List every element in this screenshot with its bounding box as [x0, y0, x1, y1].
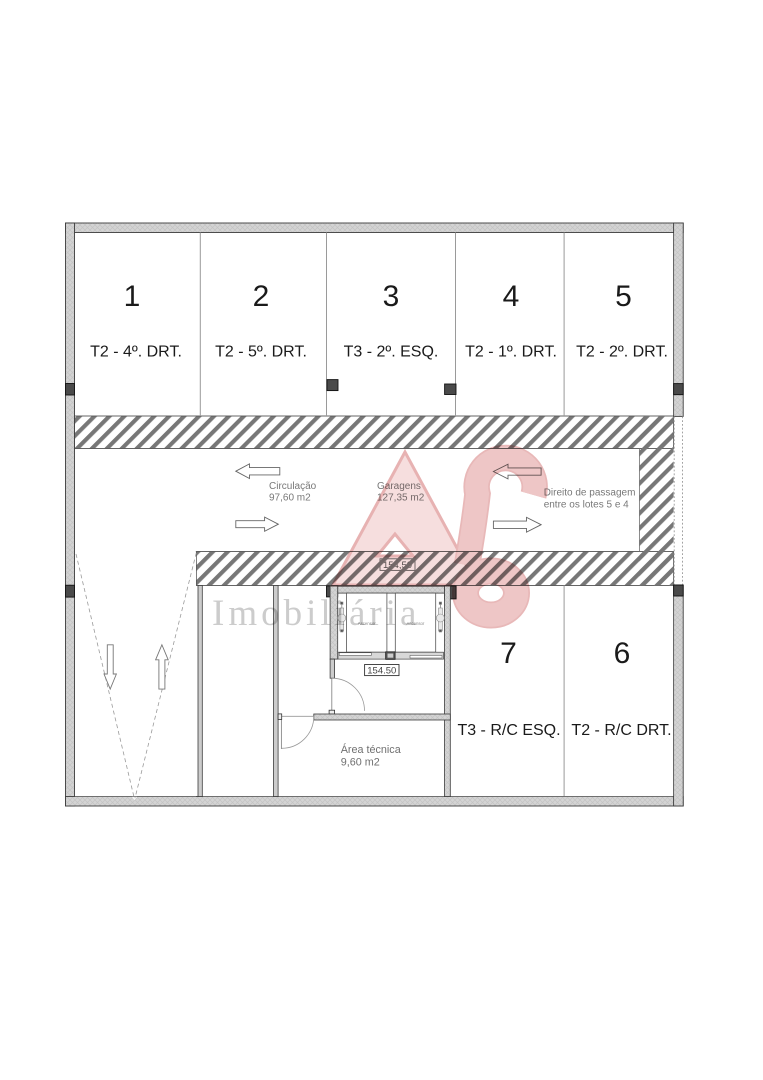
svg-text:T2 - 4º. DRT.: T2 - 4º. DRT.	[90, 344, 182, 361]
svg-text:T2 - 1º. DRT.: T2 - 1º. DRT.	[465, 344, 557, 361]
svg-text:Direito de passagem: Direito de passagem	[544, 488, 636, 499]
svg-text:154.50: 154.50	[367, 665, 396, 676]
svg-text:7: 7	[500, 637, 517, 670]
svg-text:Área técnica: Área técnica	[341, 743, 401, 756]
svg-text:T2 - R/C DRT.: T2 - R/C DRT.	[571, 722, 671, 739]
svg-text:97,60 m2: 97,60 m2	[269, 493, 311, 504]
svg-text:T3 - R/C ESQ.: T3 - R/C ESQ.	[457, 722, 560, 739]
svg-text:5: 5	[615, 280, 632, 313]
svg-text:T3 - 2º. ESQ.: T3 - 2º. ESQ.	[344, 344, 439, 361]
svg-text:6: 6	[614, 637, 631, 670]
svg-text:2: 2	[253, 280, 270, 313]
svg-text:Imobiliária: Imobiliária	[212, 593, 420, 634]
svg-text:3: 3	[383, 280, 400, 313]
svg-text:T2 - 2º. DRT.: T2 - 2º. DRT.	[576, 344, 668, 361]
svg-text:9,60 m2: 9,60 m2	[341, 757, 380, 769]
svg-text:entre os lotes 5 e 4: entre os lotes 5 e 4	[544, 499, 629, 510]
svg-text:1: 1	[124, 280, 141, 313]
svg-text:4: 4	[503, 280, 520, 313]
svg-text:T2 - 5º. DRT.: T2 - 5º. DRT.	[215, 344, 307, 361]
svg-text:Circulação: Circulação	[269, 481, 317, 492]
